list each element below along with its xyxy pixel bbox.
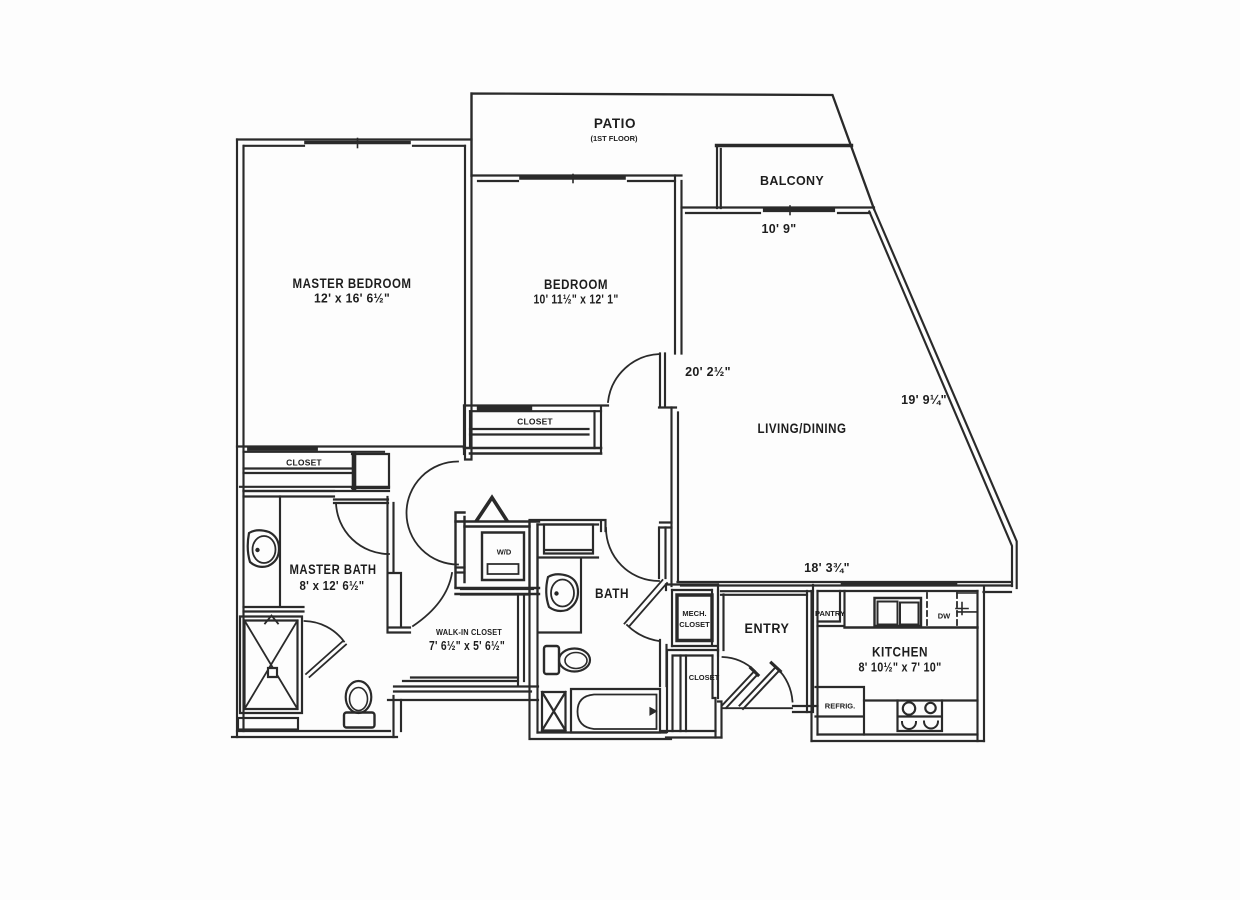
- svg-text:8' x 12' 6½": 8' x 12' 6½": [300, 579, 365, 593]
- svg-text:REFRIG.: REFRIG.: [825, 702, 855, 711]
- svg-text:10' 9": 10' 9": [761, 222, 796, 236]
- svg-text:W/D: W/D: [497, 548, 512, 557]
- svg-text:7' 6½" x 5' 6½": 7' 6½" x 5' 6½": [429, 639, 505, 653]
- svg-text:BALCONY: BALCONY: [760, 174, 824, 188]
- svg-text:20' 2½": 20' 2½": [685, 365, 731, 379]
- svg-text:ENTRY: ENTRY: [745, 621, 790, 636]
- svg-text:WALK-IN CLOSET: WALK-IN CLOSET: [436, 627, 503, 637]
- svg-text:CLOSET: CLOSET: [679, 620, 710, 629]
- svg-text:DW: DW: [938, 612, 951, 621]
- svg-text:CLOSET: CLOSET: [286, 458, 322, 468]
- svg-text:MASTER BEDROOM: MASTER BEDROOM: [293, 276, 412, 291]
- svg-text:PATIO: PATIO: [594, 116, 636, 131]
- svg-text:12' x 16' 6½": 12' x 16' 6½": [314, 292, 390, 306]
- svg-text:PANTRY: PANTRY: [815, 609, 845, 618]
- svg-text:18' 3¾": 18' 3¾": [804, 561, 850, 575]
- svg-text:19' 9¼": 19' 9¼": [901, 393, 947, 407]
- svg-text:10' 11½" x 12' 1": 10' 11½" x 12' 1": [534, 293, 619, 307]
- svg-text:LIVING/DINING: LIVING/DINING: [758, 421, 847, 436]
- svg-text:MECH.: MECH.: [682, 609, 706, 618]
- svg-text:BEDROOM: BEDROOM: [544, 277, 608, 292]
- svg-text:8' 10½" x 7' 10": 8' 10½" x 7' 10": [859, 661, 942, 675]
- svg-text:CLOSET: CLOSET: [517, 417, 553, 427]
- svg-text:BATH: BATH: [595, 586, 629, 601]
- svg-text:KITCHEN: KITCHEN: [872, 645, 928, 660]
- svg-text:(1ST FLOOR): (1ST FLOOR): [590, 134, 638, 143]
- svg-text:MASTER BATH: MASTER BATH: [290, 562, 377, 577]
- svg-text:CLOSET: CLOSET: [689, 673, 720, 682]
